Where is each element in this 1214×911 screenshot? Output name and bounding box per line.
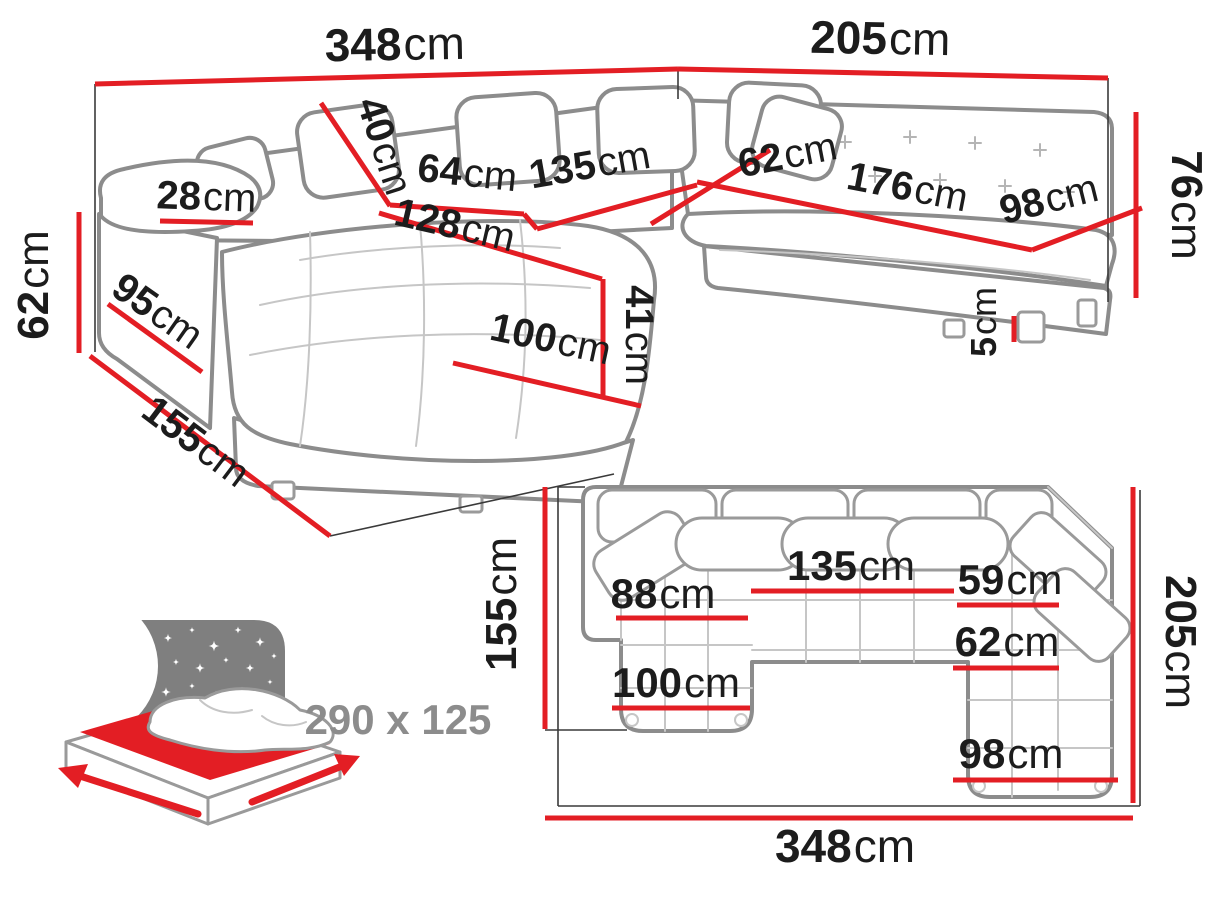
sofa-dimension-diagram: 348cm 205cm 76cm 62cm 28cm 95cm 155cm 40…	[0, 0, 1214, 911]
dim-label-41: 41cm	[617, 285, 661, 385]
dim-label-59-plan: 59cm	[958, 556, 1063, 603]
dim-line-205-top	[678, 69, 1108, 78]
dim-label-98-plan: 98cm	[959, 730, 1064, 777]
dim-label-135-plan: 135cm	[787, 542, 915, 589]
dim-line-348-top	[95, 69, 678, 84]
plan-view: 155cm 205cm 348cm 88cm 135cm 59cm 62cm 1…	[477, 487, 1205, 872]
perspective-view: 348cm 205cm 76cm 62cm 28cm 95cm 155cm 40…	[9, 11, 1211, 536]
sleeping-area-label: 290 x 125	[305, 696, 492, 743]
sofa-leg	[944, 320, 964, 337]
dim-label-100-plan: 100cm	[612, 659, 740, 706]
sofa-leg	[1078, 300, 1096, 326]
dim-label-28: 28cm	[156, 173, 257, 220]
dim-line-28	[160, 221, 253, 223]
sleeping-function-icon: 290 x 125	[12, 594, 491, 824]
dim-label-205-top: 205cm	[810, 11, 951, 65]
dim-label-348-plan: 348cm	[775, 820, 915, 872]
dim-label-348-top: 348cm	[324, 17, 465, 71]
sofa-leg	[1018, 312, 1044, 342]
dim-label-205-plan: 205cm	[1156, 575, 1205, 709]
dim-label-76: 76cm	[1162, 150, 1211, 260]
dim-label-62-plan: 62cm	[955, 618, 1060, 665]
dim-label-5: 5cm	[963, 287, 1004, 357]
dim-label-62-left: 62cm	[9, 230, 58, 340]
dim-label-155-plan: 155cm	[477, 537, 526, 671]
dim-label-88-plan: 88cm	[611, 570, 716, 617]
diagram-canvas: 348cm 205cm 76cm 62cm 28cm 95cm 155cm 40…	[0, 0, 1214, 911]
